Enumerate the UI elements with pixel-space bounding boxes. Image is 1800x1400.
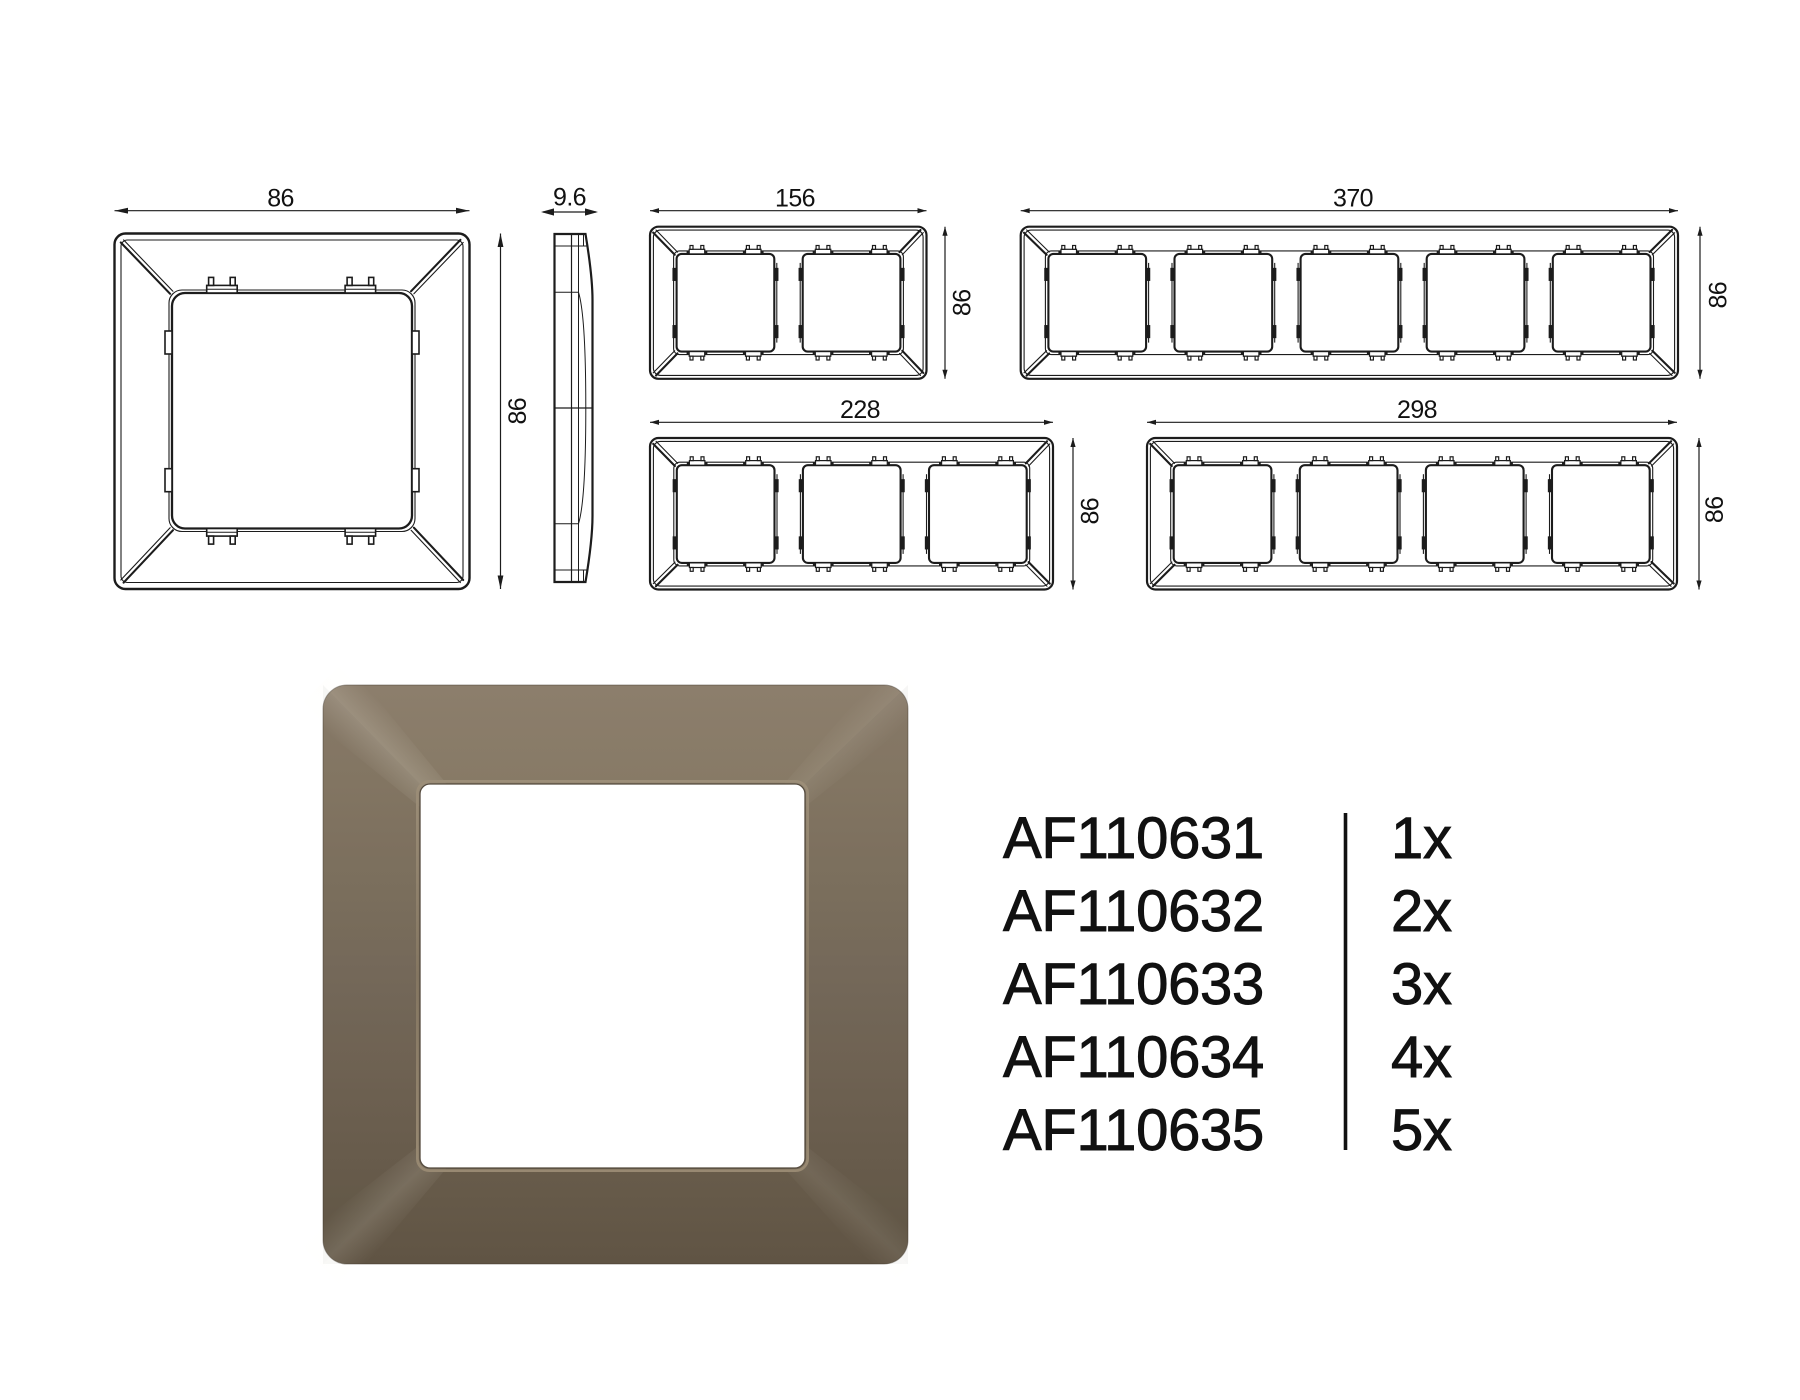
svg-text:AF110635: AF110635 [1003,1098,1264,1163]
svg-text:86: 86 [949,289,977,316]
svg-text:298: 298 [1397,396,1437,424]
svg-text:86: 86 [267,184,294,212]
svg-text:3x: 3x [1391,952,1452,1017]
svg-text:86: 86 [1701,496,1729,523]
svg-text:86: 86 [1705,282,1733,309]
svg-text:9.6: 9.6 [553,184,586,212]
svg-text:86: 86 [1077,498,1105,525]
svg-text:5x: 5x [1391,1098,1452,1163]
svg-text:228: 228 [840,396,880,424]
svg-text:AF110633: AF110633 [1003,952,1264,1017]
svg-text:AF110632: AF110632 [1003,879,1264,944]
svg-text:1x: 1x [1391,806,1452,871]
svg-text:AF110634: AF110634 [1003,1025,1264,1090]
svg-text:2x: 2x [1391,879,1452,944]
svg-text:156: 156 [775,184,815,212]
svg-text:86: 86 [504,398,532,425]
svg-text:370: 370 [1333,184,1373,212]
svg-text:4x: 4x [1391,1025,1452,1090]
svg-text:AF110631: AF110631 [1003,806,1264,871]
